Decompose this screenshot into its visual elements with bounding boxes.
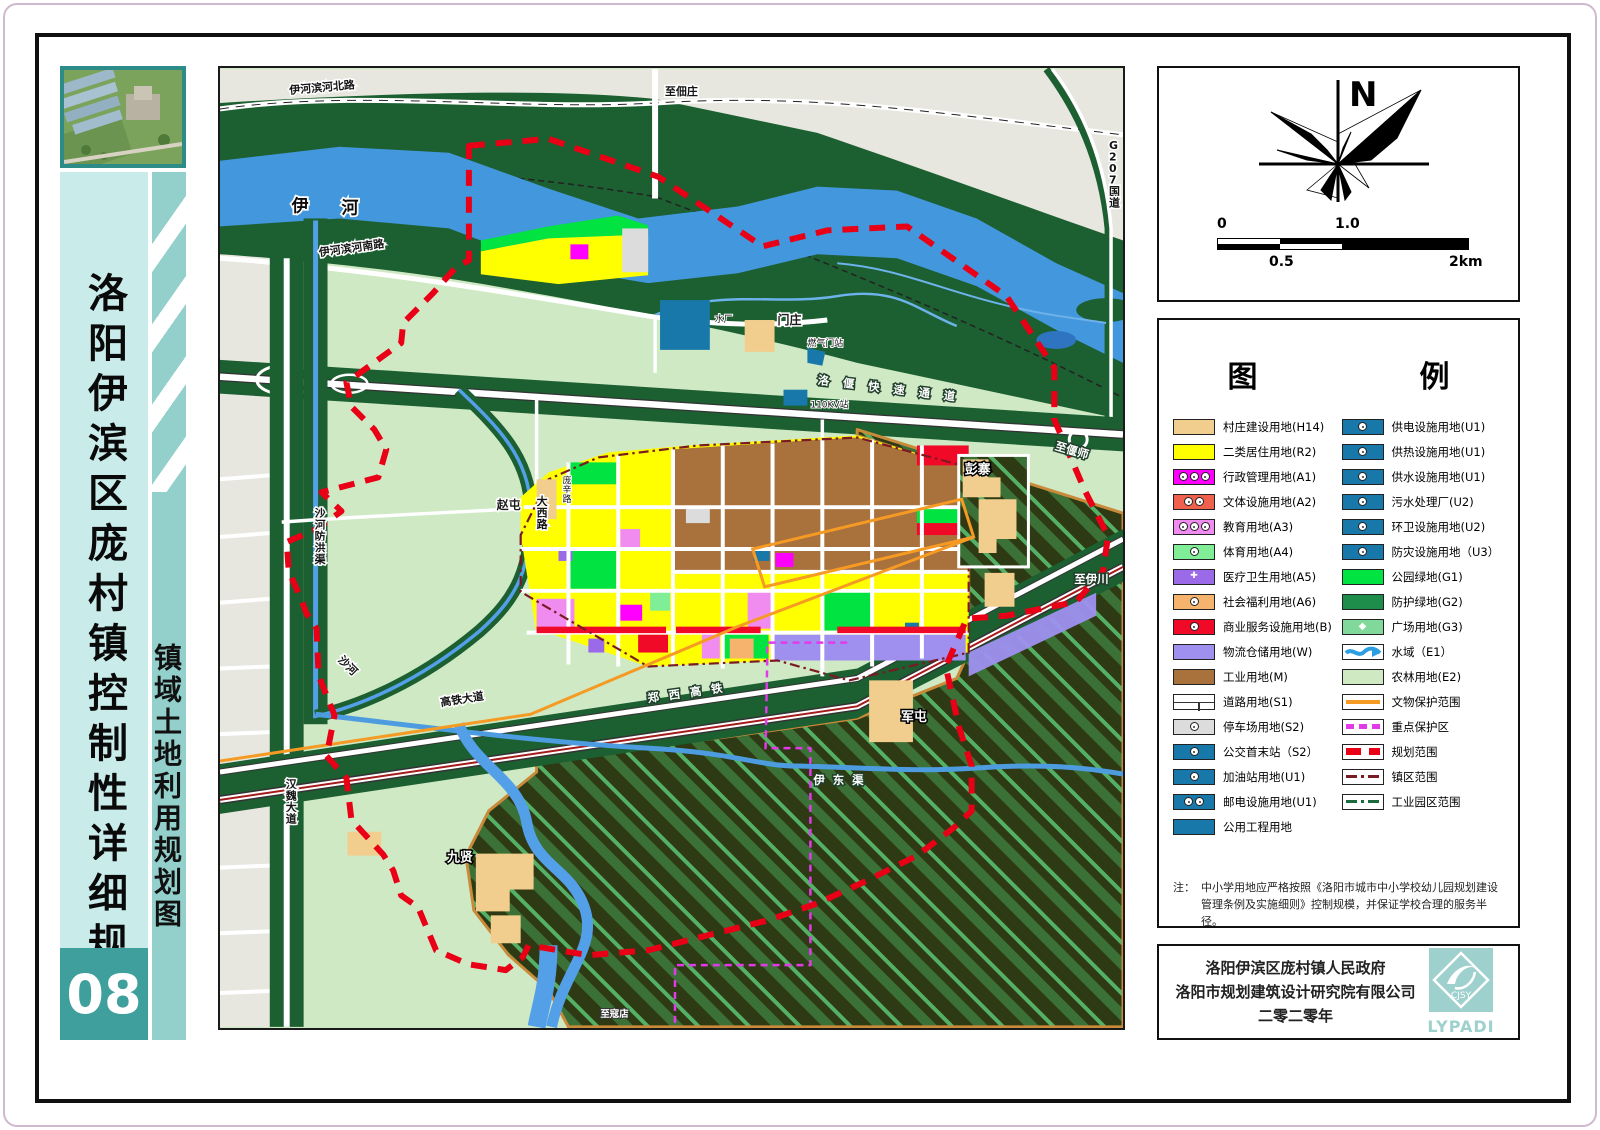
legend-swatch (1173, 419, 1215, 435)
legend-item: 公交首末站（S2） (1173, 739, 1336, 764)
legend-swatch (1173, 544, 1215, 560)
logo-caption: LYPADI (1418, 1017, 1504, 1036)
legend-item: 体育用地(A4) (1173, 539, 1336, 564)
legend-item-label: 防灾设施用地（U3） (1392, 544, 1500, 560)
map-sheet-subtitle: 镇域土地利用规划图 (152, 542, 186, 1032)
legend-swatch (1173, 519, 1215, 535)
legend-item: 文体设施用地(A2) (1173, 489, 1336, 514)
government-name: 洛阳伊滨区庞村镇人民政府 (1173, 956, 1418, 980)
legend-right-column: 供电设施用地(U1)供热设施用地(U1)供水设施用地(U1)污水处理厂(U2)环… (1342, 414, 1505, 839)
legend-swatch (1342, 794, 1384, 810)
legend-item-label: 供电设施用地(U1) (1392, 419, 1486, 435)
map-label: 彭寨 (965, 461, 991, 477)
svg-text:N: N (1349, 75, 1377, 115)
legend-swatch (1173, 644, 1215, 660)
sidebar-title-column: 洛阳伊滨区庞村镇控制性详细规划 08 (60, 172, 148, 1040)
legend-item-label: 公园绿地(G1) (1392, 569, 1463, 585)
legend-swatch: ◆ (1342, 619, 1384, 635)
legend-item: 镇区范围 (1342, 764, 1505, 789)
legend-item: 商业服务设施用地(B) (1173, 614, 1336, 639)
legend-item: 工业园区范围 (1342, 789, 1505, 814)
legend-item: 停车场用地(S2) (1173, 714, 1336, 739)
legend-title: 图 例 (1207, 352, 1504, 396)
legend-item: 公园绿地(G1) (1342, 564, 1505, 589)
legend-swatch (1173, 694, 1215, 710)
legend-item: 二类居住用地(R2) (1173, 439, 1336, 464)
map-label: 伊东渠 (812, 773, 871, 787)
legend-item: 道路用地(S1) (1173, 689, 1336, 714)
north-scale-panel: N 0 1.0 0.5 2km (1157, 66, 1520, 302)
legend-item: ◆广场用地(G3) (1342, 614, 1505, 639)
menzhuang-village (745, 320, 775, 352)
legend-swatch (1173, 719, 1215, 735)
legend-swatch (1342, 419, 1384, 435)
map-label: 至伊川 (1074, 572, 1108, 586)
legend-item-label: 二类居住用地(R2) (1223, 444, 1316, 460)
legend-item-label: 商业服务设施用地(B) (1223, 619, 1332, 635)
legend-item: 文物保护范围 (1342, 689, 1505, 714)
legend-swatch (1173, 819, 1215, 835)
legend-swatch (1342, 744, 1384, 760)
map-label: 至寇店 (600, 1008, 629, 1020)
legend-item-label: 供水设施用地(U1) (1392, 469, 1486, 485)
map-canvas: 伊河滨河北路至佃庄G207国道伊河伊河滨河南路洛偃快速通道至偃师至伊川彭寨军屯九… (220, 68, 1123, 1028)
legend-item: 社会福利用地(A6) (1173, 589, 1336, 614)
map-label: 河 (341, 197, 358, 217)
map-label: 赵屯 (496, 497, 521, 512)
map-label: 至佃庄 (665, 84, 698, 98)
legend-swatch (1342, 444, 1384, 460)
legend-item: 环卫设施用地(U2) (1342, 514, 1505, 539)
water-plant (660, 300, 710, 350)
legend-item-label: 村庄建设用地(H14) (1223, 419, 1324, 435)
legend-swatch (1342, 469, 1384, 485)
legend-item-label: 水域（E1） (1392, 644, 1453, 660)
svg-text:CJSY: CJSY (1451, 991, 1472, 1001)
map-label: 九贤 (446, 851, 473, 866)
diagonal-stripes-decoration (152, 192, 186, 492)
legend-item-label: 农林用地(E2) (1392, 669, 1462, 685)
map-label: 水厂 (715, 313, 733, 325)
legend-swatch (1342, 669, 1384, 685)
legend-item-label: 污水处理厂(U2) (1392, 494, 1474, 510)
legend-item: 行政管理用地(A1) (1173, 464, 1336, 489)
design-institute-name: 洛阳市规划建筑设计研究院有限公司 (1173, 980, 1418, 1004)
legend-item: 教育用地(A3) (1173, 514, 1336, 539)
legend-item-label: 医疗卫生用地(A5) (1223, 569, 1316, 585)
legend-swatch (1342, 519, 1384, 535)
legend-item: 邮电设施用地(U1) (1173, 789, 1336, 814)
legend-item-label: 社会福利用地(A6) (1223, 594, 1316, 610)
legend-swatch (1173, 594, 1215, 610)
institute-logo: CJSY LYPADI (1418, 948, 1504, 1036)
legend-item: 污水处理厂(U2) (1342, 489, 1505, 514)
land-use-map[interactable]: 伊河滨河北路至佃庄G207国道伊河伊河滨河南路洛偃快速通道至偃师至伊川彭寨军屯九… (218, 66, 1125, 1030)
substation-110kv (784, 390, 808, 406)
legend-item-label: 教育用地(A3) (1223, 519, 1293, 535)
legend-item: 物流仓储用地(W) (1173, 639, 1336, 664)
map-label: 庞辛路 (562, 474, 571, 505)
legend-item: 防护绿地(G2) (1342, 589, 1505, 614)
legend-item-label: 道路用地(S1) (1223, 694, 1293, 710)
legend-item-label: 防护绿地(G2) (1392, 594, 1463, 610)
legend-item-label: 环卫设施用地(U2) (1392, 519, 1486, 535)
legend-swatch (1173, 769, 1215, 785)
legend-item-label: 镇区范围 (1392, 769, 1438, 785)
legend-item-label: 广场用地(G3) (1392, 619, 1463, 635)
legend-item-label: 物流仓储用地(W) (1223, 644, 1312, 660)
legend-item-label: 文体设施用地(A2) (1223, 494, 1316, 510)
legend-item: 水域（E1） (1342, 639, 1505, 664)
map-label: 汉魏大道 (285, 777, 298, 825)
map-label: 大西路 (537, 494, 549, 531)
sidebar-stripe-column: 镇域土地利用规划图 (152, 172, 186, 1040)
legend-item-label: 行政管理用地(A1) (1223, 469, 1316, 485)
map-label: 伊 (291, 195, 309, 215)
jiuxian-village-2 (491, 915, 521, 943)
legend-swatch (1342, 569, 1384, 585)
legend-swatch (1173, 619, 1215, 635)
legend-item-label: 体育用地(A4) (1223, 544, 1293, 560)
legend-item-label: 工业用地(M) (1223, 669, 1288, 685)
legend-item-label: 文物保护范围 (1392, 694, 1461, 710)
legend-item: ✚医疗卫生用地(A5) (1173, 564, 1336, 589)
legend-swatch (1173, 444, 1215, 460)
legend-item: 防灾设施用地（U3） (1342, 539, 1505, 564)
legend-swatch (1342, 644, 1384, 660)
legend-item: 农林用地(E2) (1342, 664, 1505, 689)
legend-item-label: 工业园区范围 (1392, 794, 1461, 810)
legend-item-label: 邮电设施用地(U1) (1223, 794, 1317, 810)
legend-swatch (1342, 494, 1384, 510)
logo-mark: CJSY (1429, 948, 1493, 1012)
map-label: 燃气门站 (807, 337, 843, 349)
map-label: 门庄 (778, 312, 802, 327)
legend-item: 加油站用地(U1) (1173, 764, 1336, 789)
sheet-number: 08 (60, 948, 148, 1040)
legend-swatch (1173, 744, 1215, 760)
legend-item: 供电设施用地(U1) (1342, 414, 1505, 439)
legend-item-label: 重点保护区 (1392, 719, 1450, 735)
legend-left-column: 村庄建设用地(H14)二类居住用地(R2)行政管理用地(A1)文体设施用地(A2… (1173, 414, 1336, 839)
legend-item-label: 公交首末站（S2） (1223, 744, 1318, 760)
legend-item-label: 规划范围 (1392, 744, 1438, 760)
legend-item-label: 加油站用地(U1) (1223, 769, 1305, 785)
legend-item-label: 停车场用地(S2) (1223, 719, 1304, 735)
legend-item-label: 供热设施用地(U1) (1392, 444, 1486, 460)
legend-swatch (1342, 594, 1384, 610)
title-block: 洛阳伊滨区庞村镇人民政府 洛阳市规划建筑设计研究院有限公司 二零二零年 CJSY… (1157, 944, 1520, 1040)
plan-year: 二零二零年 (1173, 1004, 1418, 1028)
scale-bar (1217, 238, 1469, 250)
legend-swatch (1173, 669, 1215, 685)
legend-swatch (1342, 694, 1384, 710)
project-rendering-thumbnail (60, 66, 186, 168)
legend-item-label: 公用工程用地 (1223, 819, 1292, 835)
legend-swatch (1342, 769, 1384, 785)
map-label: 军屯 (901, 709, 927, 725)
north-arrow: N (1159, 72, 1517, 212)
legend-panel: 图 例 村庄建设用地(H14)二类居住用地(R2)行政管理用地(A1)文体设施用… (1157, 318, 1520, 928)
legend-swatch (1173, 494, 1215, 510)
map-label: 沙河防洪渠 (314, 507, 326, 566)
plan-title: 洛阳伊滨区庞村镇控制性详细规划 (60, 272, 148, 1022)
legend-item: 重点保护区 (1342, 714, 1505, 739)
aerial-render-image (64, 70, 182, 164)
legend-swatch: ✚ (1173, 569, 1215, 585)
legend-item: 供热设施用地(U1) (1342, 439, 1505, 464)
legend-note: 注： 中小学用地应严格按照《洛阳市城市中小学校幼儿园规划建设管理条例及实施细则》… (1173, 879, 1504, 930)
town-center (521, 435, 969, 676)
legend-item: 村庄建设用地(H14) (1173, 414, 1336, 439)
legend-item: 公用工程用地 (1173, 814, 1336, 839)
legend-swatch (1342, 544, 1384, 560)
map-label: 110KV站 (810, 399, 848, 411)
legend-swatch (1173, 794, 1215, 810)
legend-swatch (1342, 719, 1384, 735)
legend-item: 供水设施用地(U1) (1342, 464, 1505, 489)
legend-swatch (1173, 469, 1215, 485)
legend-item: 规划范围 (1342, 739, 1505, 764)
legend-item: 工业用地(M) (1173, 664, 1336, 689)
